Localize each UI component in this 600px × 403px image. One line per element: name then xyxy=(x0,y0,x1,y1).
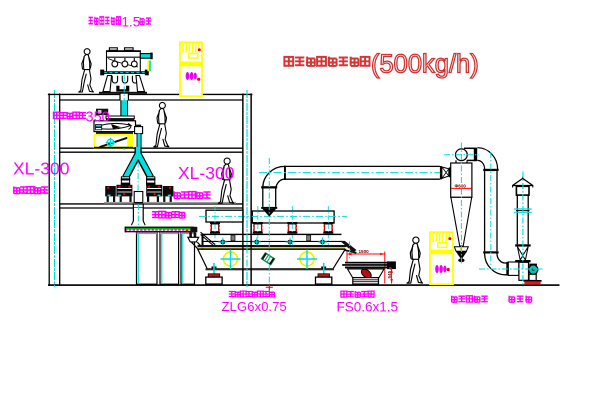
svg-text:XL-300: XL-300 xyxy=(13,159,70,179)
svg-text:ZLG6x0.75: ZLG6x0.75 xyxy=(222,299,287,314)
svg-text:350: 350 xyxy=(86,110,110,126)
svg-text:1.5: 1.5 xyxy=(122,15,141,30)
svg-text:(500kg/h): (500kg/h) xyxy=(371,51,479,79)
svg-text:FS0.6x1.5: FS0.6x1.5 xyxy=(337,300,399,315)
svg-text:XL-300: XL-300 xyxy=(178,163,235,183)
svg-text:545: 545 xyxy=(387,270,392,278)
svg-text:1500: 1500 xyxy=(359,249,370,254)
svg-text:Φ600: Φ600 xyxy=(455,184,467,189)
